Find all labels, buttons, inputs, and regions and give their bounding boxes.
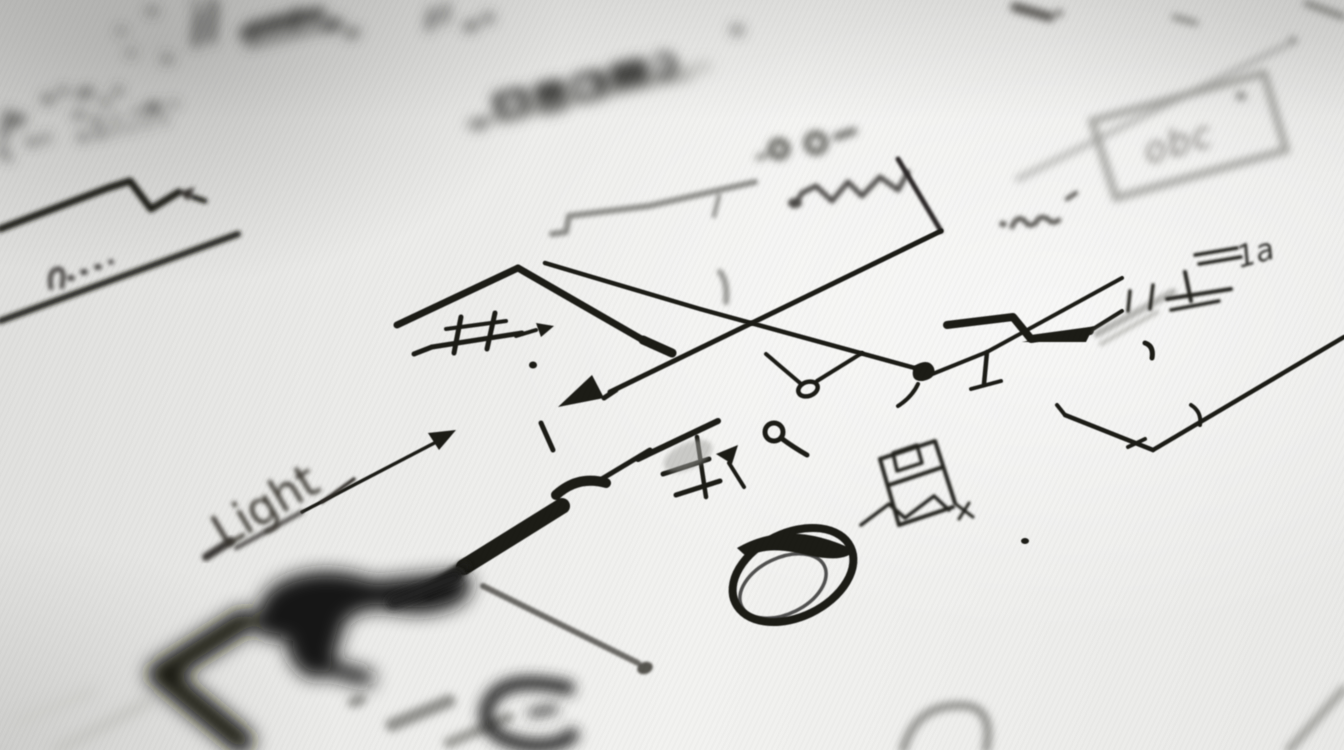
flag-arrowhead <box>716 445 738 464</box>
grey-step-wire <box>552 182 755 302</box>
connector-label: 1a <box>1233 232 1279 276</box>
light-annotation: Light <box>202 453 354 558</box>
zigzag-under-box <box>861 496 949 525</box>
capacitor-comb-symbol <box>414 313 554 369</box>
schematic-canvas: obc <box>0 0 1344 750</box>
small-glyph-blob <box>758 131 854 158</box>
resistor-squiggle-marks <box>1000 193 1077 227</box>
relay-box-component <box>861 441 973 525</box>
junction-blob <box>556 481 606 495</box>
long-v-wire <box>1057 337 1344 450</box>
left-bus-structure <box>0 181 238 321</box>
big-oval-mark <box>717 509 869 641</box>
steep-joiner-wire <box>898 159 941 231</box>
long-arrow-wire <box>610 231 941 392</box>
top-edge-marks <box>1015 3 1344 23</box>
junction-dot <box>529 362 537 369</box>
zigzag-squiggle-wire <box>788 172 908 208</box>
partial-circle-bottom <box>903 706 988 750</box>
light-label: Light <box>202 453 328 558</box>
corner-diagonal <box>1289 689 1344 750</box>
speckle-cluster-top-left <box>2 0 495 158</box>
light-arrowhead <box>428 430 456 450</box>
bold-c-glyph <box>486 683 572 746</box>
ladder-connector <box>1128 248 1241 311</box>
box-label: obc <box>1139 114 1218 173</box>
small-arrowhead-right <box>536 323 554 337</box>
chevron-blob <box>160 621 243 741</box>
digit-nine-mark <box>765 423 807 455</box>
soft-grey-lead <box>483 586 655 676</box>
component-box-top-right: obc <box>1018 37 1297 198</box>
box-edge-left <box>397 268 518 325</box>
corner-streaks-bottom-left <box>18 692 148 750</box>
big-arrowhead-left <box>558 375 604 407</box>
title-blob <box>468 26 743 131</box>
terminal-teardrop <box>913 362 935 381</box>
heavy-ink-bar <box>464 506 562 567</box>
